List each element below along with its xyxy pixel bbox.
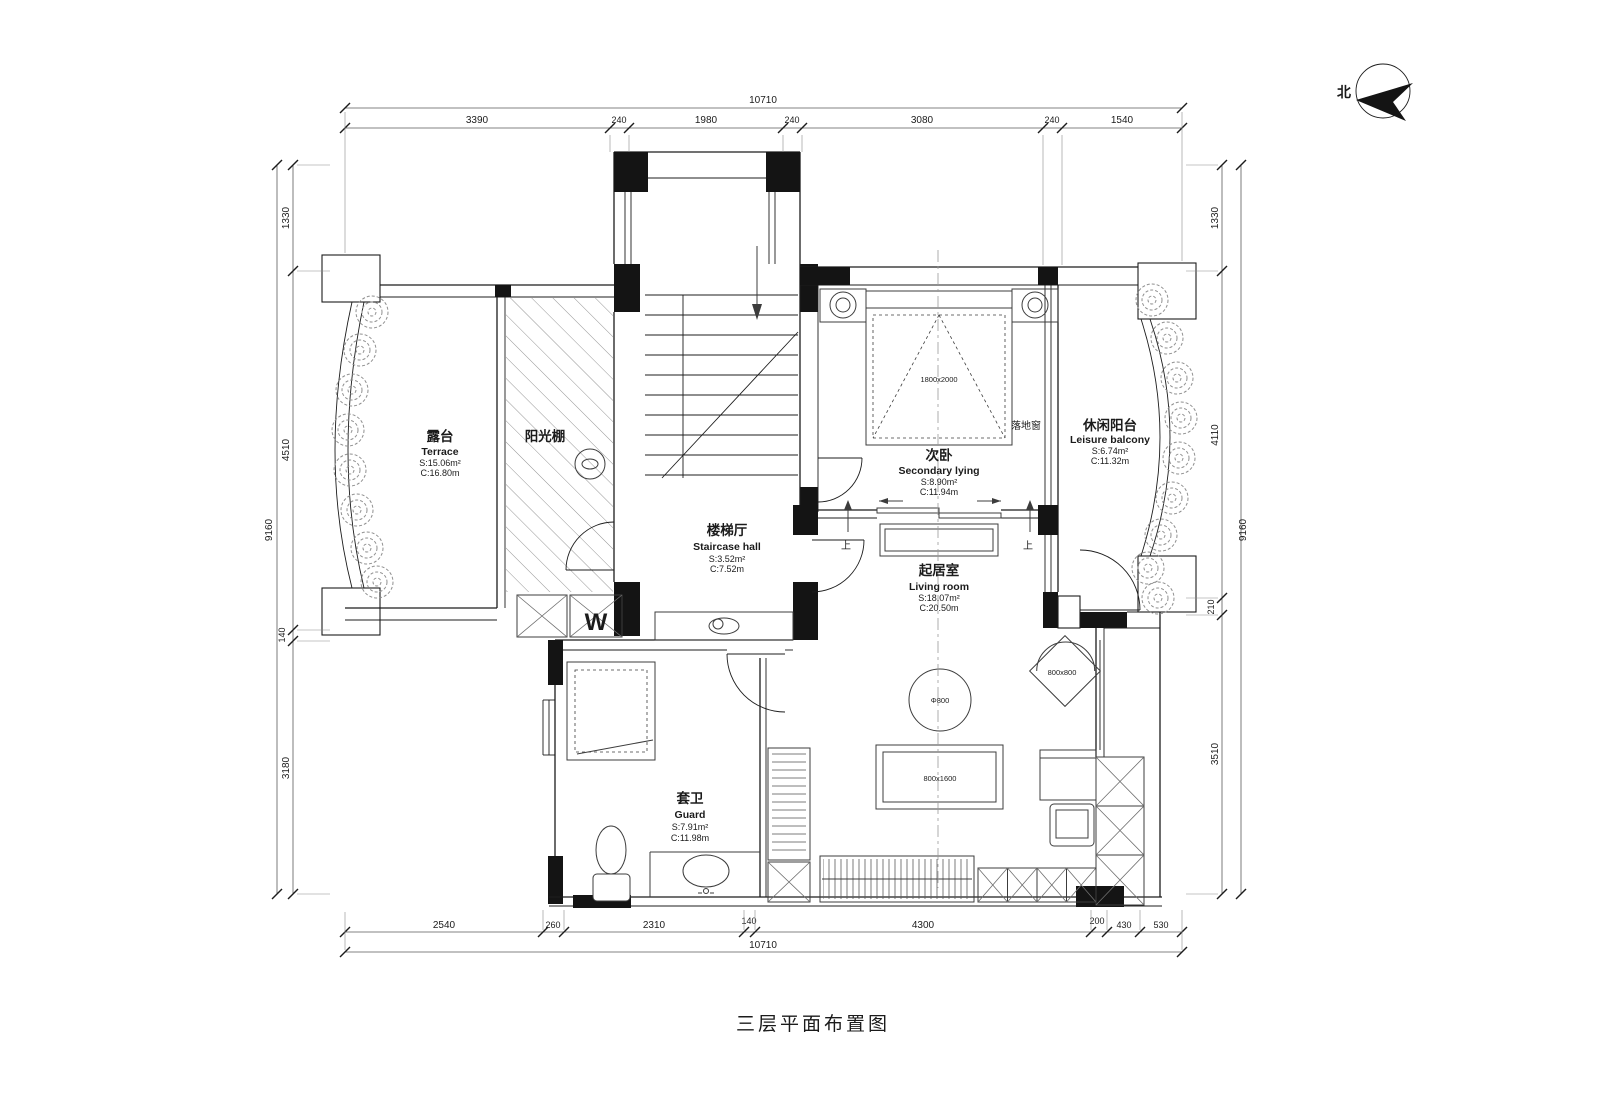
hall-name-en: Staircase hall	[693, 541, 761, 553]
dim-right-overall: 9160	[1238, 518, 1249, 541]
drawing-title: 三层平面布置图	[736, 1013, 890, 1035]
svg-text:C:11.32m: C:11.32m	[1091, 456, 1129, 466]
svg-text:3180: 3180	[281, 756, 292, 779]
svg-text:1540: 1540	[1111, 115, 1134, 126]
terrace-name-en: Terrace	[421, 446, 458, 458]
up-label-right: 上	[1023, 540, 1033, 552]
svg-text:1980: 1980	[695, 115, 718, 126]
wardrobe	[1096, 757, 1144, 905]
svg-text:S:6.74m²: S:6.74m²	[1092, 446, 1129, 456]
svg-text:240: 240	[611, 115, 626, 125]
svg-text:C:11.94m: C:11.94m	[920, 487, 958, 497]
room-label-living-room: 起居室 Living room S:18.07m² C:20.50m	[909, 562, 969, 613]
round-table-label: Φ800	[931, 696, 950, 705]
svg-text:430: 430	[1116, 920, 1131, 930]
terrace-name-zh: 露台	[427, 428, 454, 444]
svg-text:C:7.52m: C:7.52m	[710, 564, 744, 574]
dimensions-top: 10710 3390 240 1980 240 3080 240 1540	[340, 95, 1187, 265]
bedroom-window-sill	[844, 498, 1034, 532]
svg-text:4300: 4300	[912, 920, 935, 931]
svg-text:4110: 4110	[1210, 424, 1221, 446]
coffee-table-label: 800x1600	[924, 774, 957, 783]
svg-text:240: 240	[1044, 115, 1059, 125]
towel-ladder	[768, 748, 810, 902]
corner-chair-label: 800x800	[1048, 668, 1077, 677]
floor-window-label: 落地窗	[1011, 419, 1041, 432]
compass-needle	[1356, 83, 1413, 121]
up-label-left: 上	[841, 540, 851, 552]
washer-label: W	[585, 609, 608, 636]
svg-text:S:18.07m²: S:18.07m²	[918, 593, 960, 603]
bench-radiator	[820, 856, 974, 902]
north-arrow: 北	[1337, 64, 1413, 121]
room-label-staircase-hall: 楼梯厅 Staircase hall S:3.52m² C:7.52m	[693, 522, 761, 574]
north-label: 北	[1337, 84, 1351, 100]
shower	[567, 662, 655, 760]
svg-text:210: 210	[1206, 599, 1216, 614]
svg-text:S:15.06m²: S:15.06m²	[419, 458, 461, 468]
room-label-guard: 套卫 Guard S:7.91m² C:11.98m	[671, 790, 709, 843]
living-name-zh: 起居室	[918, 562, 960, 578]
staircase	[645, 246, 798, 478]
dimensions-left: 9160 1330 4510 140 3180	[264, 160, 330, 899]
svg-text:3510: 3510	[1210, 742, 1221, 765]
svg-text:3390: 3390	[466, 115, 489, 126]
svg-text:2540: 2540	[433, 920, 456, 931]
floorplan-canvas: 10710 3390 240 1980 240 3080 240 1540	[0, 0, 1600, 1105]
room-label-secondary-bedroom: 次卧 Secondary lying S:8.90m² C:11.94m	[898, 447, 979, 497]
console-table	[655, 612, 793, 640]
svg-text:260: 260	[545, 920, 560, 930]
room-label-terrace: 露台 Terrace S:15.06m² C:16.80m	[419, 428, 461, 478]
svg-text:1330: 1330	[1210, 206, 1221, 229]
svg-text:3080: 3080	[911, 115, 934, 126]
dimensions-bottom: 2540 260 2310 140 4300 200 430 530 10710	[340, 910, 1187, 957]
dimensions-right: 1330 4110 210 3510 9160	[1186, 160, 1249, 899]
sink	[650, 852, 760, 897]
floor-plan-drawing: 10710 3390 240 1980 240 3080 240 1540	[0, 0, 1600, 1105]
sunroom-glass-hatch	[506, 298, 613, 592]
svg-text:140: 140	[277, 627, 287, 642]
room-label-leisure-balcony: 休闲阳台 Leisure balcony S:6.74m² C:11.32m	[1070, 417, 1150, 466]
hall-name-zh: 楼梯厅	[707, 522, 748, 538]
bedroom-name-en: Secondary lying	[898, 465, 979, 477]
terrace-trees	[332, 296, 393, 598]
guard-name-en: Guard	[675, 809, 706, 821]
dim-left-overall: 9160	[264, 518, 275, 541]
room-label-sunroom: 阳光棚	[525, 428, 566, 444]
svg-text:S:8.90m²: S:8.90m²	[921, 477, 958, 487]
svg-text:1330: 1330	[281, 206, 292, 229]
svg-text:200: 200	[1089, 916, 1104, 926]
guard-name-zh: 套卫	[677, 790, 705, 806]
svg-text:C:11.98m: C:11.98m	[671, 833, 709, 843]
svg-text:4510: 4510	[281, 438, 292, 461]
toilet	[593, 826, 630, 901]
svg-text:2310: 2310	[643, 920, 666, 931]
dim-bottom-overall: 10710	[749, 940, 777, 951]
bed-size-label: 1800x2000	[920, 375, 957, 384]
balcony-name-en: Leisure balcony	[1070, 434, 1150, 446]
walls	[322, 152, 1196, 908]
balcony-name-zh: 休闲阳台	[1082, 417, 1137, 433]
sunroom-name-zh: 阳光棚	[525, 428, 566, 444]
svg-text:S:3.52m²: S:3.52m²	[709, 554, 746, 564]
svg-text:240: 240	[784, 115, 799, 125]
bedroom-name-zh: 次卧	[926, 447, 954, 463]
svg-text:S:7.91m²: S:7.91m²	[672, 822, 709, 832]
svg-text:C:16.80m: C:16.80m	[420, 468, 459, 478]
svg-text:530: 530	[1153, 920, 1168, 930]
svg-text:C:20.50m: C:20.50m	[919, 603, 958, 613]
living-name-en: Living room	[909, 581, 969, 593]
dim-top-overall: 10710	[749, 95, 777, 106]
